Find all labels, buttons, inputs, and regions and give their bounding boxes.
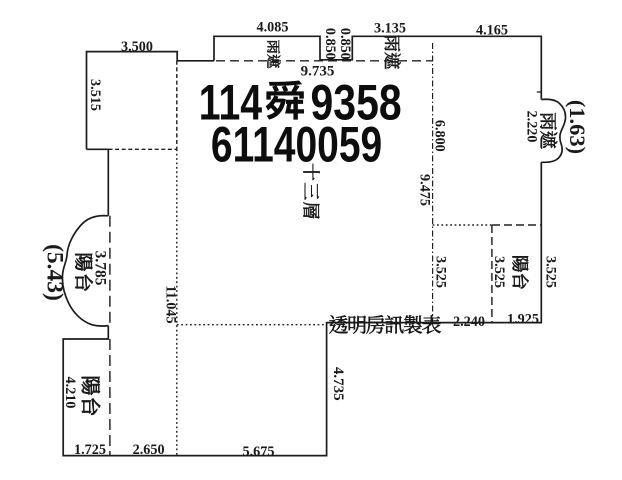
- svg-text:3.500: 3.500: [121, 39, 153, 55]
- svg-text:1.725: 1.725: [74, 442, 106, 458]
- svg-text:4.085: 4.085: [257, 19, 289, 35]
- svg-text:3.525: 3.525: [542, 256, 558, 288]
- svg-text:3.135: 3.135: [374, 20, 406, 36]
- svg-text:5.675: 5.675: [243, 444, 275, 460]
- svg-text:0.850: 0.850: [322, 28, 338, 60]
- svg-text:2.240: 2.240: [453, 314, 485, 330]
- svg-text:3.785: 3.785: [92, 251, 109, 286]
- svg-text:6.800: 6.800: [432, 120, 448, 152]
- svg-text:1.925: 1.925: [507, 312, 539, 328]
- svg-text:2.220: 2.220: [523, 111, 539, 143]
- svg-text:0.850: 0.850: [337, 28, 353, 60]
- svg-text:(5.43): (5.43): [42, 244, 68, 301]
- svg-text:(1.63): (1.63): [565, 100, 590, 154]
- svg-text:9.475: 9.475: [417, 174, 433, 206]
- svg-text:4.735: 4.735: [330, 367, 346, 401]
- svg-text:2.650: 2.650: [133, 442, 165, 458]
- svg-text:3.525: 3.525: [491, 256, 507, 288]
- svg-text:4.165: 4.165: [476, 23, 508, 39]
- svg-text:61140059: 61140059: [211, 116, 382, 173]
- svg-text:4.210: 4.210: [62, 377, 78, 409]
- svg-text:3.515: 3.515: [87, 79, 103, 111]
- svg-text:11.045: 11.045: [163, 285, 179, 323]
- svg-text:3.525: 3.525: [433, 256, 449, 288]
